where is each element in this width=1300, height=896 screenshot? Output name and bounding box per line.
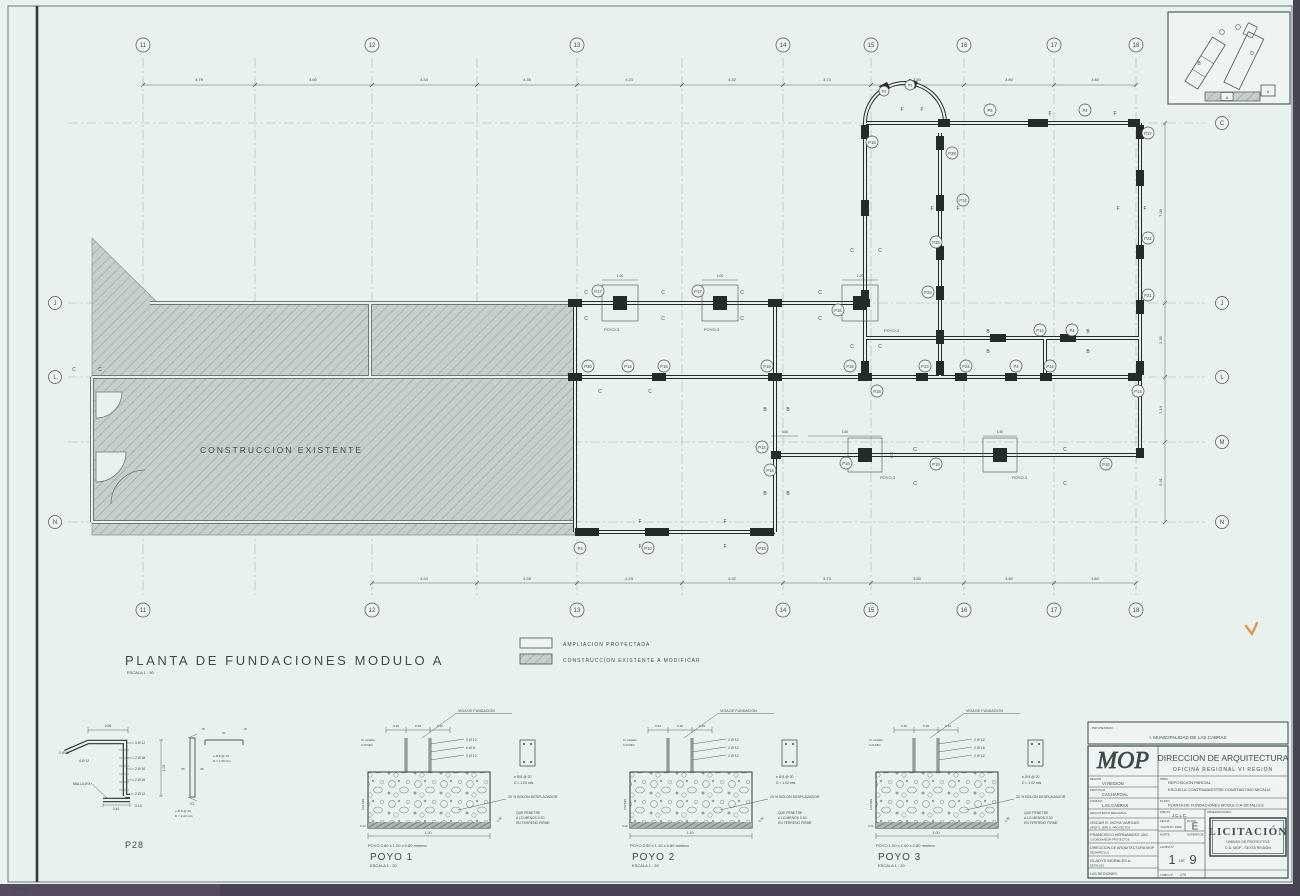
bar-dim: 61 [222, 731, 226, 735]
field-value: CACHAPOAL [1102, 792, 1129, 797]
axis-label: 17 [1051, 608, 1058, 614]
dim-label: 0.40 [113, 807, 120, 811]
penetra-note: EN TERRENO FIRME [516, 821, 550, 825]
left-dim: h= variable [361, 738, 375, 742]
wall-letter-c: C [850, 344, 854, 350]
field-sub: ARQTO. JEFE U. PROYECTOS [1090, 826, 1130, 830]
stamp-title: LICITACIÓN [1208, 826, 1287, 838]
left-dim: 0.80 MIN. [361, 798, 365, 810]
detail-title: POYO 3 [878, 852, 921, 863]
dim-label: 1.10 [687, 831, 694, 835]
svg-text:P19: P19 [932, 462, 940, 467]
footing-bubble: P18 [871, 385, 883, 397]
field-value: DIRECCION DE ARQUITECTURA MOP [1090, 846, 1155, 850]
svg-text:P16: P16 [766, 468, 774, 473]
footing-bubble: P20 [582, 360, 594, 372]
wall-letter-c: C [72, 367, 76, 373]
svg-text:P18: P18 [842, 461, 850, 466]
dim-label: 1.00 [857, 274, 864, 278]
dim-label: 3.73 [823, 576, 832, 581]
footing-bubble: P14 [957, 194, 969, 206]
footing-bubble: P6 [879, 86, 889, 96]
field-value: OSCAR E. MOYA VARGAS [1090, 820, 1139, 825]
wall-letter-c: C [878, 344, 882, 350]
footing-bubble: P14 [1044, 360, 1056, 372]
stirrup-note: e Ø 8 @ 20 [776, 775, 794, 779]
field-value: LAS REGIONES [1090, 872, 1117, 876]
detail-caption: POYO 0.90 x 1.10 x 0.80 mínimo [630, 843, 689, 848]
office-title: OFICINA REGIONAL VI REGION [1173, 767, 1273, 773]
legend-label: AMPLIACION PROYECTADA [563, 642, 650, 648]
seal-layer [630, 822, 752, 828]
axis-label: 14 [780, 43, 787, 49]
left-dim: 0.20 MIN. [869, 743, 881, 747]
bolon-note: 20 % BOLON DESPLAZADOR [508, 795, 558, 799]
dim-label: 4.34 [420, 576, 429, 581]
left-dim: h= variable [869, 738, 883, 742]
svg-text:P3: P3 [577, 546, 583, 551]
footing-bubble: P16 [1100, 458, 1112, 470]
rebar-callout: 2 Ø 12 [135, 792, 145, 796]
wall-letter-c: C [878, 248, 882, 254]
svg-text:P5: P5 [908, 84, 912, 88]
depth-note: D = 1.03 mts [514, 781, 534, 785]
footing-bubble: P19 [930, 458, 942, 470]
wall-letter-f: F [920, 107, 923, 113]
viga-label: VIGA DE FUNDACION [458, 709, 495, 713]
dim-label: 4.35 [523, 77, 532, 82]
rebar-callout: 2 Ø 12 [728, 746, 739, 750]
stamp-line: UNIDAD DE PROYECTOS [1226, 840, 1270, 844]
detail-caption: POYO 1.00 x 1.00 x 0.80 mínimo [876, 843, 935, 848]
field-label: ARQUITECTO REGIONAL [1090, 811, 1127, 815]
viga-label: VIGA DE FUNDACION [720, 709, 757, 713]
footing-bubble: P16 [764, 464, 776, 476]
dim-label: 4.34 [420, 77, 429, 82]
footing-bubble: P19 [756, 542, 768, 554]
drawing-sheet: P2443 11 12 13 14 15 16 17 18 11 12 13 1… [0, 0, 1300, 896]
field-value: J.C.L.C. [1172, 813, 1187, 818]
dim-label: 0.66 [105, 724, 112, 728]
owner-box [1088, 722, 1288, 744]
dim-label: 2.14 [1158, 405, 1163, 414]
mop-logo: MOP [1096, 748, 1149, 774]
keyplan-module-a-strip-label: A [1226, 95, 1229, 100]
dim-label: 0.40 [901, 724, 907, 728]
detail-title: P28 [125, 840, 144, 850]
svg-text:P22: P22 [1144, 236, 1152, 241]
dim-label: 0.43 [655, 724, 661, 728]
field-label: NORTE [1160, 833, 1170, 837]
rebar-callout: 2 Ø 12 [59, 751, 69, 755]
field-label: DIBUJO [1160, 810, 1171, 814]
footing-bubble: P5 [984, 104, 996, 116]
penetra-note: EN TERRENO FIRME [1024, 821, 1058, 825]
rebar-callout: 2 Ø 12 [728, 738, 739, 742]
depth-note: D = 1.02 mts [1022, 781, 1042, 785]
bar-dim: 18 [201, 727, 205, 731]
field-value: ESCUELA CONTRAMAESTRE CONSTANTINO MICALV… [1168, 787, 1271, 792]
wall-letter-c: C [740, 290, 744, 296]
svg-text:P21: P21 [1144, 293, 1152, 298]
sheet-number: 1 [1168, 852, 1175, 867]
axis-label: 12 [369, 608, 376, 614]
wall-letter-c: C [648, 389, 652, 395]
axis-label: 11 [140, 43, 147, 49]
keyplan-module-d: D [1250, 51, 1254, 57]
dim-label: 1.00 [890, 452, 894, 459]
dim-label: 3.41 [1158, 477, 1163, 486]
legend-swatch-existing [520, 654, 552, 664]
svg-text:P19: P19 [846, 364, 854, 369]
svg-text:P14: P14 [1134, 389, 1142, 394]
svg-text:P23: P23 [921, 364, 929, 369]
footing-bubble: P4 [1066, 324, 1078, 336]
footing-bubble: P24 [922, 286, 934, 298]
axis-label: 11 [140, 608, 147, 614]
dim-label: 1.00 [617, 274, 624, 278]
left-dim: 0.10 [622, 824, 628, 828]
footing-bubble: P5 [905, 80, 915, 90]
svg-text:P4: P4 [1082, 108, 1088, 113]
rebar-callout: 2 Ø 12 [466, 738, 477, 742]
footing-bubble: P4 [1079, 104, 1091, 116]
rebar-callout: 4 Ø 12 [79, 759, 89, 763]
field-sub: DESARROLLO [1090, 851, 1110, 855]
wall-letter-c: C [584, 290, 588, 296]
dim-label: 4.23 [625, 576, 634, 581]
svg-text:P25: P25 [932, 240, 940, 245]
legend-label: CONSTRUCCION EXISTENTE A MODIFICAR [563, 658, 701, 664]
rebar-callout: 2 Ø 12 [728, 754, 739, 758]
detail-scale: ESCALA 1 : 20 [370, 863, 397, 868]
detail-scale: ESCALA 1 : 20 [632, 863, 659, 868]
axis-label: C [1220, 121, 1225, 127]
penetra-note: QUE PENETRE [1024, 811, 1049, 815]
footing-bubble: P28 [946, 147, 958, 159]
footing-bubble: P15 [658, 360, 670, 372]
dim-label: 4.32 [728, 576, 737, 581]
svg-text:P18: P18 [873, 389, 881, 394]
detail-title: POYO 1 [370, 852, 413, 863]
stirrup-note: e Ø 8 @ 20 [1022, 775, 1040, 779]
key-plan: B D A A [1168, 12, 1290, 104]
svg-text:P24: P24 [962, 364, 970, 369]
field-value: VI REGION [1102, 781, 1124, 786]
poyo3-label: POYO-3 [704, 327, 720, 332]
dim-label: 0.20 [677, 724, 683, 728]
svg-text:P14: P14 [1046, 364, 1054, 369]
dim-label: 3.80 [913, 576, 922, 581]
axis-label: J [54, 301, 57, 307]
footing-bubble: P14 [756, 441, 768, 453]
left-dim: 0.20 MIN. [623, 743, 635, 747]
detail-title: POYO 2 [632, 852, 675, 863]
dim-label: 1.00 [933, 831, 940, 835]
axis-label: 16 [961, 43, 968, 49]
wall-letter-f: F [930, 206, 933, 212]
axis-label: 18 [1133, 43, 1140, 49]
dim-label: 3.80 [1091, 77, 1100, 82]
poyo3-label: POYO-3 [884, 328, 900, 333]
title-block: PROPIETARIO : I. MUNICIPALIDAD DE LAS CA… [1088, 722, 1289, 878]
viga-label: VIGA DE FUNDACION [966, 709, 1003, 713]
sheet-total: 9 [1189, 852, 1196, 867]
dept-title: DIRECCION DE ARQUITECTURA [1158, 753, 1289, 763]
svg-text:P15: P15 [868, 140, 876, 145]
legend-swatch-new [520, 638, 552, 648]
penetra-note: EN TERRENO FIRME [778, 821, 812, 825]
axis-label: M [1220, 440, 1225, 446]
axis-label: 18 [1133, 608, 1140, 614]
dim-label: 4.32 [728, 77, 737, 82]
rebar-callout: 2 Ø 16 [135, 767, 145, 771]
footing-bubble: P19 [761, 360, 773, 372]
dim-label: 3.80 [1091, 576, 1100, 581]
field-label: FECHA [1160, 819, 1170, 823]
sheet-svg: P2443 11 12 13 14 15 16 17 18 11 12 13 1… [0, 0, 1300, 896]
wall-letter-c: C [598, 389, 602, 395]
footing-box [368, 772, 490, 828]
axis-label: J [1221, 301, 1224, 307]
stirrup-note: D = 1.50 mts [213, 759, 231, 763]
footing-bubble: P3 [574, 542, 586, 554]
footing-box [630, 772, 752, 828]
dim-label: 1.05 [162, 765, 166, 772]
svg-text:P4: P4 [1069, 328, 1075, 333]
bolon-note: 20 % BOLON DESPLAZADOR [1016, 795, 1066, 799]
corner-code: P2443 [14, 887, 29, 893]
axis-label: 17 [1051, 43, 1058, 49]
footing-box [876, 772, 998, 828]
footing-bubble: P24 [960, 360, 972, 372]
axis-label: 14 [780, 608, 787, 614]
footing-bubble: P23 [919, 360, 931, 372]
dim-label: 4.23 [625, 77, 634, 82]
field-value: E [1192, 822, 1199, 833]
field-label: TUBO Nº [1160, 873, 1174, 877]
footing-bubble: P27 [1142, 127, 1154, 139]
dim-label: 1.00 [717, 274, 724, 278]
dim-label: 1.60 [842, 430, 849, 434]
penetra-note: QUE PENETRE [778, 811, 803, 815]
svg-text:P19: P19 [763, 364, 771, 369]
stirrup-note: D = 2.23 mts [175, 814, 193, 818]
penetra-note: A LO MENOS 0.30 [516, 816, 545, 820]
left-dim: 0.10 [360, 824, 366, 828]
footing-bubble: P17 [692, 285, 704, 297]
rebar-callout: 2 Ø 12 [974, 738, 985, 742]
svg-text:P12: P12 [624, 364, 632, 369]
field-value: 275 [1180, 873, 1186, 877]
dim-label: 0.40 [945, 724, 951, 728]
svg-text:P15: P15 [660, 364, 668, 369]
rebar-callout: e Ø 8 [466, 746, 475, 750]
footing-bubble: P21 [1142, 289, 1154, 301]
wall-letter-c: C [661, 316, 665, 322]
left-dim: h= variable [623, 738, 637, 742]
svg-text:P14: P14 [1036, 328, 1044, 333]
footing-bubble: P18 [840, 457, 852, 469]
footing-bubble: P12 [622, 360, 634, 372]
svg-text:P4: P4 [1013, 364, 1019, 369]
svg-text:P27: P27 [1144, 131, 1152, 136]
rebar-callout: 2 Ø 16 [135, 778, 145, 782]
field-value: FRANCISCO HERNANDEZ JAC. [1090, 832, 1149, 837]
axis-label: N [1220, 520, 1224, 526]
poyo3-label: POYO-3 [604, 327, 620, 332]
field-label: OBRA [1160, 777, 1168, 781]
penetra-note: QUE PENETRE [516, 811, 541, 815]
field-sub: DETALLES [1090, 864, 1104, 868]
wall-letter-c: C [740, 316, 744, 322]
dim-label: 4.60 [309, 77, 318, 82]
dim-label: 3.80 [1005, 576, 1014, 581]
sheet-of: DE [1179, 858, 1185, 863]
dim-label: 0.20 [923, 724, 929, 728]
dim-label: 0.40 [393, 724, 399, 728]
wall-letter-f: F [1116, 206, 1119, 212]
field-value: LAS CABRAS [1102, 803, 1129, 808]
axis-label: 15 [868, 608, 875, 614]
owner-name: I. MUNICIPALIDAD DE LAS CABRAS [1149, 735, 1226, 740]
footing-bubble: P16 [832, 304, 844, 316]
seal-layer [368, 822, 490, 828]
dim-label: 3.73 [823, 77, 832, 82]
svg-text:P5: P5 [987, 108, 993, 113]
axis-label: 13 [574, 43, 581, 49]
axis-label: N [53, 520, 57, 526]
dim-label: 1.50 [997, 430, 1004, 434]
rebar-callout: 2 Ø 12 [466, 754, 477, 758]
field-label: COMUNA [1090, 799, 1103, 803]
wall-letter-f: F [1113, 111, 1116, 117]
field-value: REPOSICION PARCIAL [1168, 780, 1212, 785]
svg-text:P6: P6 [882, 90, 886, 94]
wall-letter-f: F [1048, 111, 1051, 117]
wall-letter-c: C [1063, 481, 1067, 487]
owner-label: PROPIETARIO : [1092, 726, 1115, 730]
rebar-callout: 2 Ø 16 [974, 746, 985, 750]
field-value: GLADYS MORALES A. [1090, 858, 1132, 863]
rebar-callout: 2 Ø 12 [974, 754, 985, 758]
wall-letter-c: C [584, 316, 588, 322]
wall-letter-c: C [913, 447, 917, 453]
field-label: REGION [1090, 777, 1101, 781]
wall-letter-f: F [956, 206, 959, 212]
footing-bubble: P4 [1010, 360, 1022, 372]
svg-text:P24: P24 [924, 290, 932, 295]
dim-label: 0.15 [135, 804, 142, 808]
wall-letter-f: F [723, 519, 726, 525]
footing-bubble: P19 [844, 360, 856, 372]
footing-bubble: P14 [1034, 324, 1046, 336]
field-sub: COORDINADOR PROYECTOS [1090, 838, 1130, 842]
stirrup-note: e Ø 8 @ 20 [514, 775, 532, 779]
axis-label: 16 [961, 608, 968, 614]
poyo3-label: POYO-3 [1012, 475, 1028, 480]
svg-text:P10: P10 [644, 546, 652, 551]
dim-label: 0.49 [699, 724, 705, 728]
stamp-line: D.A. MOP - SEXTA REGIÓN [1225, 845, 1271, 850]
seal-layer [876, 822, 998, 828]
wall-letter-c: C [818, 290, 822, 296]
dim-label: 7.08 [1158, 208, 1163, 217]
detail-scale: ESCALA 1 : 20 [878, 863, 905, 868]
existing-building-label: CONSTRUCCION EXISTENTE [200, 445, 363, 455]
left-dim: 0.80 MIN. [623, 798, 627, 810]
field-label: LAMINA Nº [1160, 845, 1174, 849]
stirrup-note: e Ø 8 @ 10 [175, 809, 191, 813]
dim-label: 2.35 [1158, 335, 1163, 344]
axis-label: 12 [369, 43, 376, 49]
dim-label: 3.80 [1005, 77, 1014, 82]
wall-letter-f: F [638, 544, 641, 550]
detail-caption: POYO 0.80 x 1.20 x 0.80 mínimo [368, 843, 427, 848]
axis-label: 13 [574, 608, 581, 614]
rebar-callout: 2 Ø 16 [135, 756, 145, 760]
svg-text:P28: P28 [948, 151, 956, 156]
svg-text:P17: P17 [594, 289, 602, 294]
footing-bubble: P17 [592, 285, 604, 297]
left-dim: 0.20 MIN. [361, 743, 373, 747]
dim-label: 0.40 [437, 724, 443, 728]
plan-scale: ESCALA 1 : 50 [127, 670, 154, 675]
bar-dim: 95 [200, 767, 204, 771]
dim-label: 1.20 [425, 831, 432, 835]
field-label: OBSERVACIONES [1207, 810, 1231, 814]
svg-text:P19: P19 [758, 546, 766, 551]
depth-note: D = 1.02 mts [776, 781, 796, 785]
svg-text:P16: P16 [834, 308, 842, 313]
wall-letter-f: F [900, 107, 903, 113]
rebar-callout: 3 Ø 12 [135, 741, 145, 745]
penetra-note: A LO MENOS 0.30 [778, 816, 807, 820]
field-label: SUPERFICIE [1187, 833, 1204, 837]
wall-letter-c: C [661, 290, 665, 296]
axis-label: 15 [868, 43, 875, 49]
footing-bubble: P14 [1132, 385, 1144, 397]
plan-title: PLANTA DE FUNDACIONES MODULO A [125, 653, 444, 668]
dim-label: 4.79 [195, 77, 204, 82]
svg-text:P20: P20 [584, 364, 592, 369]
svg-text:P17: P17 [694, 289, 702, 294]
wall-letter-f: F [1143, 206, 1146, 212]
footing-bubble: P10 [642, 542, 654, 554]
wall-letter-c: C [98, 367, 102, 373]
svg-text:P16: P16 [1102, 462, 1110, 467]
svg-text:P14: P14 [959, 198, 967, 203]
bar-tag: V2 [190, 802, 194, 806]
keyplan-module-a-box-label: A [1267, 89, 1270, 94]
wall-letter-f: F [723, 544, 726, 550]
footing-bubble: P25 [930, 236, 942, 248]
left-dim: 0.10 [868, 824, 874, 828]
wall-letter-c: C [1063, 447, 1067, 453]
dim-label: 4.35 [523, 576, 532, 581]
dim-label: 0.60 [782, 430, 789, 434]
bar-dim: 95 [181, 767, 185, 771]
footing-bubble: P22 [1142, 232, 1154, 244]
wall-letter-c: C [913, 481, 917, 487]
svg-text:P14: P14 [758, 445, 766, 450]
scan-edge-tint [0, 884, 220, 896]
penetra-note: A LO MENOS 0.30 [1024, 816, 1053, 820]
footing-bubble: P15 [866, 136, 878, 148]
wall-letter-c: C [818, 316, 822, 322]
poyo3-label: POYO-3 [880, 475, 896, 480]
dim-label: 0.20 [415, 724, 421, 728]
